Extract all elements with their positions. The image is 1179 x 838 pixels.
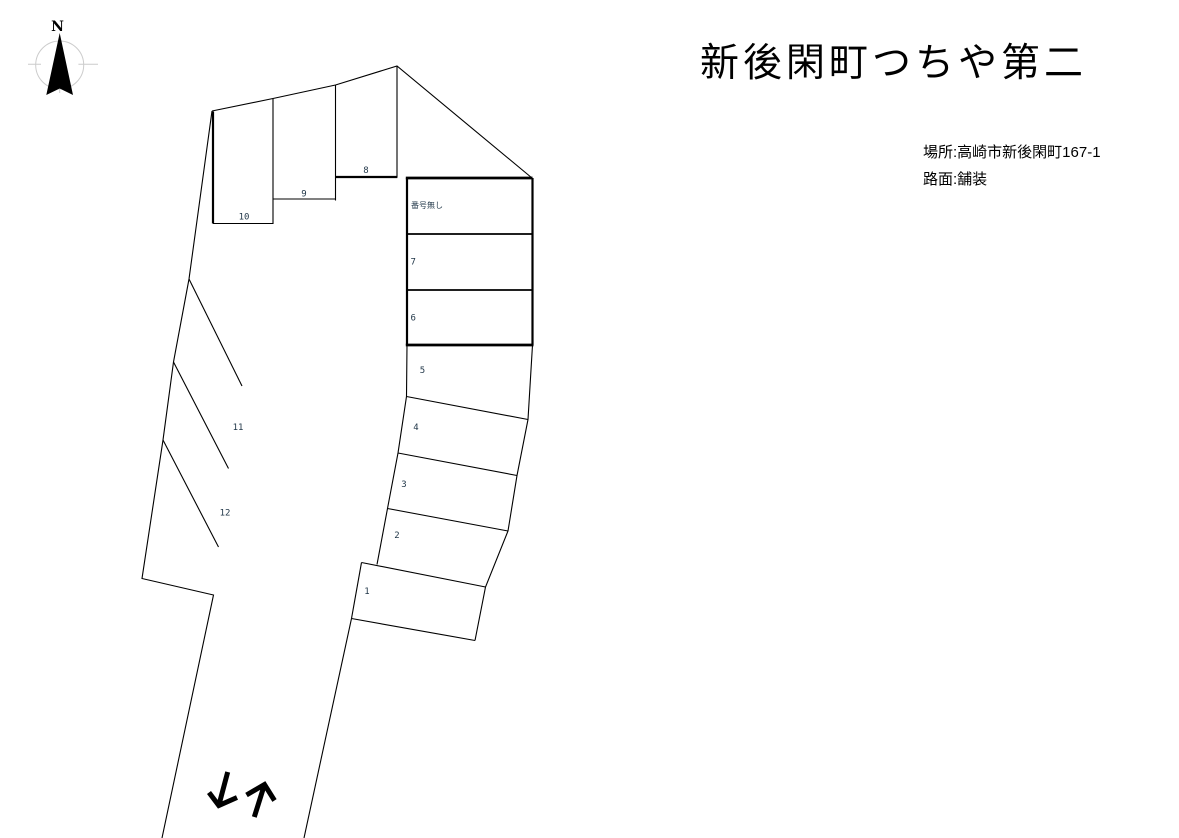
space-label-7: 7 (411, 258, 416, 268)
lot-outline (142, 66, 532, 838)
space-10-outline (213, 99, 273, 224)
space-9-outline (273, 85, 336, 201)
lot-boundary-top-edge (212, 66, 532, 178)
spaces-11-12-stripes (163, 279, 242, 547)
space-label-4: 4 (413, 423, 418, 433)
down-arrow-icon (209, 772, 237, 806)
space-label-5: 5 (420, 366, 425, 376)
space-label-6: 6 (411, 314, 416, 324)
spaces-8-9-10 (213, 66, 397, 224)
space-labels: 10 9 8 番号無し 7 6 5 4 3 2 1 11 12 (220, 166, 443, 597)
space-4-3-divider (398, 453, 517, 476)
space-label-10: 10 (239, 213, 250, 223)
space-label-no-number: 番号無し (411, 200, 443, 210)
traffic-arrows (209, 772, 275, 817)
space-5-4-divider (407, 397, 529, 420)
parking-lot-map: 10 9 8 番号無し 7 6 5 4 3 2 1 11 12 (0, 0, 1179, 838)
driveway-right-edge (304, 619, 352, 838)
space-1-top-edge (362, 563, 486, 588)
space-label-1: 1 (364, 587, 369, 597)
space-3-2-divider (388, 509, 509, 532)
space-label-3: 3 (401, 480, 406, 490)
space-label-12: 12 (220, 509, 231, 519)
space-label-9: 9 (301, 190, 306, 200)
space-11-upper-stripe (189, 279, 242, 386)
space-1-left-edge (352, 563, 362, 619)
space-label-8: 8 (363, 166, 368, 176)
column-right-edge (475, 345, 533, 641)
space-12-lower-stripe (163, 440, 219, 547)
column-left-edge (377, 345, 407, 565)
space-label-11: 11 (233, 423, 244, 433)
page: { "header": { "title": "新後閑町つちや第二" }, "i… (0, 0, 1179, 838)
space-1-bottom-edge (352, 619, 476, 641)
up-arrow-icon (247, 785, 275, 818)
lot-boundary-left-edge (142, 111, 214, 838)
space-label-2: 2 (394, 531, 399, 541)
space-11-12-divider (174, 362, 229, 469)
spaces-1-to-5 (352, 345, 533, 641)
